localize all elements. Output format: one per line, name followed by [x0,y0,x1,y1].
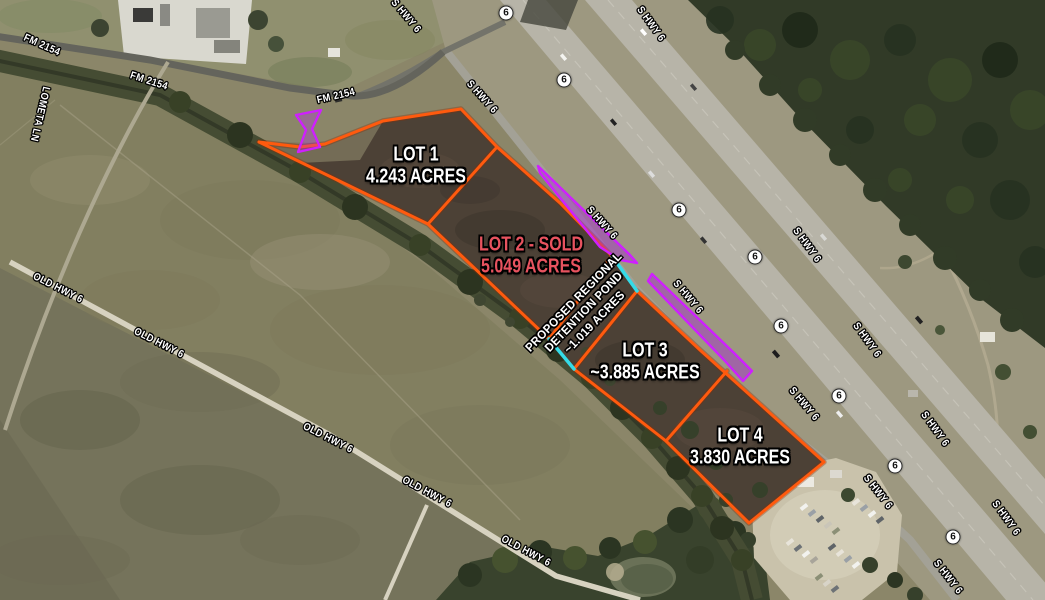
road-label-lometa-ln: LOMETA LN [28,85,52,142]
pond-label-line: DETENTION POND [533,259,636,365]
lot-acreage: 3.830 ACRES [690,447,790,469]
lot-acreage: 4.243 ACRES [366,166,466,188]
hwy-6-shield: 6 [557,73,572,88]
road-label-s-hwy-6: S HWY 6 [388,0,423,35]
road-label-s-hwy-6: S HWY 6 [670,278,705,317]
aerial-lot-map: FM 2154FM 2154FM 2154LOMETA LNS HWY 6S H… [0,0,1045,600]
road-label-fm-2154: FM 2154 [22,32,62,59]
road-label-old-hwy-6: OLD HWY 6 [31,270,85,305]
hwy-6-shield: 6 [832,389,847,404]
road-label-s-hwy-6: S HWY 6 [918,409,951,449]
lot-2-sold-label: LOT 2 - SOLD5.049 ACRES [479,234,583,279]
hwy-6-shield: 6 [888,459,903,474]
lot-name: LOT 1 [366,144,466,166]
lot-acreage: ~3.885 ACRES [590,362,699,384]
road-label-fm-2154: FM 2154 [129,69,170,92]
lot-name: LOT 3 [590,340,699,362]
road-label-old-hwy-6: OLD HWY 6 [301,420,355,455]
hwy-6-shield: 6 [946,530,961,545]
road-label-s-hwy-6: S HWY 6 [584,204,620,242]
road-label-s-hwy-6: S HWY 6 [634,4,667,44]
lot-acreage: 5.049 ACRES [479,256,583,278]
lot-name: LOT 2 - SOLD [479,234,583,256]
pond-label-line: ~1.019 ACRES [543,269,646,375]
road-label-s-hwy-6: S HWY 6 [861,472,895,511]
road-label-s-hwy-6: S HWY 6 [786,385,821,424]
lot-3-label: LOT 3~3.885 ACRES [590,340,699,385]
road-label-old-hwy-6: OLD HWY 6 [400,474,454,510]
road-label-old-hwy-6: OLD HWY 6 [132,325,186,360]
road-label-s-hwy-6: S HWY 6 [464,78,500,116]
road-label-s-hwy-6: S HWY 6 [850,320,883,360]
road-label-s-hwy-6: S HWY 6 [989,498,1022,538]
road-label-fm-2154: FM 2154 [316,86,357,106]
pond-label-line: PROPOSED REGIONAL [522,249,625,355]
lot-name: LOT 4 [690,425,790,447]
road-label-old-hwy-6: OLD HWY 6 [499,533,553,569]
lot-1-label: LOT 14.243 ACRES [366,144,466,189]
road-label-s-hwy-6: S HWY 6 [790,225,823,265]
hwy-6-shield: 6 [774,319,789,334]
road-label-s-hwy-6: S HWY 6 [931,557,965,596]
hwy-6-shield: 6 [748,250,763,265]
detention-pond-label: PROPOSED REGIONALDETENTION POND~1.019 AC… [522,249,645,375]
hwy-6-shield: 6 [672,203,687,218]
hwy-6-shield: 6 [499,6,514,21]
lot-4-label: LOT 43.830 ACRES [690,425,790,470]
map-labels: FM 2154FM 2154FM 2154LOMETA LNS HWY 6S H… [0,0,1045,600]
